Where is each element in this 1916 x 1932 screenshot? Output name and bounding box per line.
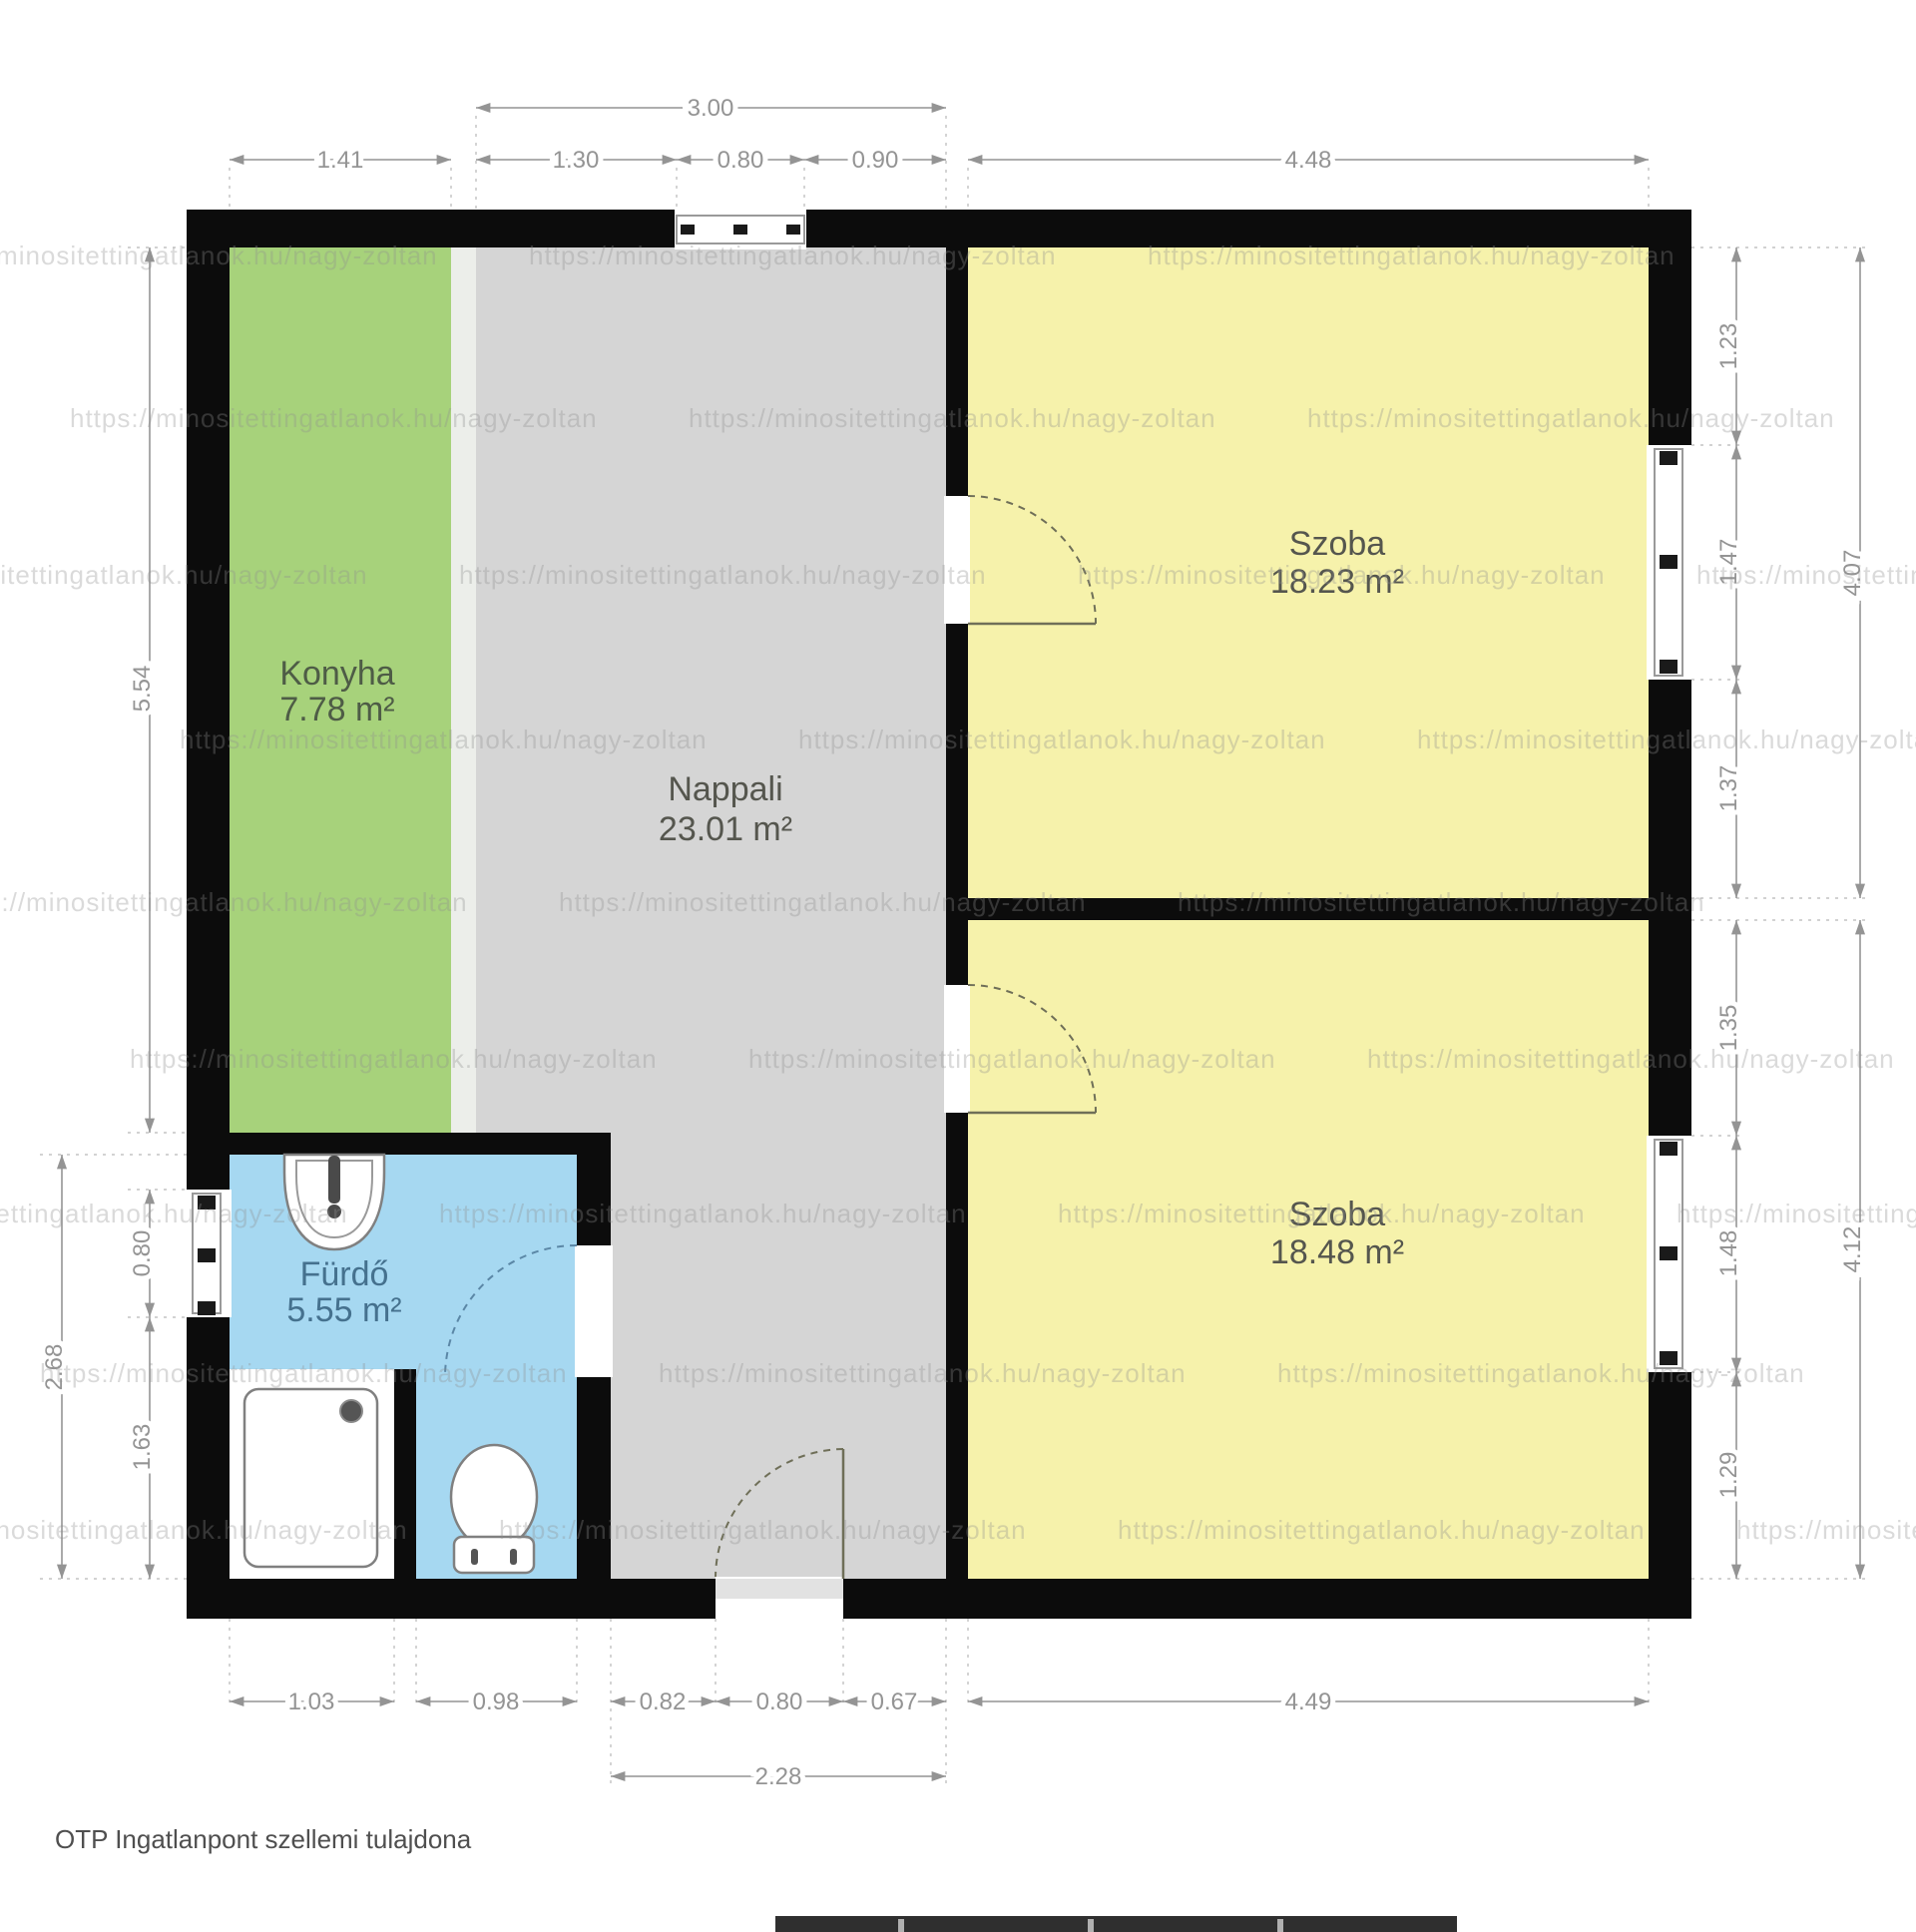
watermark-text: https://minositettingatlanok.hu/nagy-zol… bbox=[1277, 1358, 1805, 1388]
watermark-text: https://minositettingatlanok.hu/nagy-zol… bbox=[559, 887, 1087, 917]
bathroom-area: 5.55 m² bbox=[286, 1291, 401, 1329]
bedroom1-label: Szoba bbox=[1289, 525, 1385, 563]
watermark-text: https://minositettingatlanok.hu/nagy-zol… bbox=[40, 1358, 568, 1388]
watermark-text: https://minositettingatlanok.hu/nagy-zol… bbox=[70, 403, 598, 433]
watermark-text: https://minositettingatlanok.hu/nagy-zol… bbox=[499, 1515, 1027, 1545]
wall-shower-stub bbox=[394, 1369, 416, 1579]
bedroom2-window-tick bbox=[1660, 1142, 1677, 1156]
living-room-label: Nappali bbox=[668, 770, 782, 808]
watermark-text: https://minositettingatlanok.hu/nagy-zol… bbox=[1078, 560, 1606, 590]
bedroom1-window-tick bbox=[1660, 660, 1677, 674]
floor-plan-drawing: Konyha 7.78 m² Nappali 23.01 m² Szoba 18… bbox=[0, 0, 1916, 1932]
watermark-text: https://minositettingatlanok.hu/nagy-zol… bbox=[1367, 1044, 1895, 1074]
living-room-area: 23.01 m² bbox=[659, 810, 792, 848]
dim-right-upper-1: 1.23 bbox=[1715, 323, 1742, 370]
dim-right-lower-3: 1.29 bbox=[1715, 1452, 1742, 1499]
dim-top-1: 1.41 bbox=[317, 147, 364, 174]
dim-right-upper-3: 1.37 bbox=[1715, 765, 1742, 812]
watermark-text: https://minositettingatlanok.hu/nagy-zol… bbox=[459, 560, 987, 590]
watermark-text: https://minositettingatlanok.hu/nagy-zol… bbox=[1058, 1199, 1586, 1228]
sink-faucet-icon bbox=[328, 1156, 340, 1204]
watermark-text: https://minositettingatlanok.hu/nagy-zol… bbox=[0, 1515, 408, 1545]
footer-copyright: OTP Ingatlanpont szellemi tulajdona bbox=[55, 1824, 472, 1854]
watermark-text: https://minositettingatlanok.hu/nagy-zol… bbox=[0, 887, 468, 917]
dim-top-2: 1.30 bbox=[553, 147, 600, 174]
dim-bottom-overall: 2.28 bbox=[755, 1763, 802, 1790]
dim-bottom-room: 4.49 bbox=[1285, 1689, 1332, 1715]
floor-plan-page: Konyha 7.78 m² Nappali 23.01 m² Szoba 18… bbox=[0, 0, 1916, 1932]
watermark-text: https://minositettingatlanok.hu/nagy-zol… bbox=[0, 560, 368, 590]
watermark-text: https://minositettingatlanok.hu/nagy-zol… bbox=[130, 1044, 658, 1074]
kitchen-area: 7.78 m² bbox=[279, 691, 394, 728]
watermark-text: https://minositettingatlanok.hu/nagy-zol… bbox=[439, 1199, 967, 1228]
watermark-text: https://minositettingatlanok.hu/nagy-zol… bbox=[0, 241, 438, 270]
dim-bottom-4: 0.80 bbox=[756, 1689, 803, 1715]
watermark-text: https://minositettingatlanok.hu/nagy-zol… bbox=[1696, 560, 1916, 590]
dim-bottom-1: 1.03 bbox=[288, 1689, 335, 1715]
watermark-text: https://minositettingatlanok.hu/nagy-zol… bbox=[1676, 1199, 1916, 1228]
watermark-text: https://minositettingatlanok.hu/nagy-zol… bbox=[1736, 1515, 1916, 1545]
toilet-hinge-right bbox=[510, 1549, 517, 1565]
dim-bottom-2: 0.98 bbox=[473, 1689, 520, 1715]
bathroom-door-opening bbox=[575, 1245, 613, 1377]
kitchen-living-divider bbox=[451, 247, 476, 1133]
dim-left-kitchen: 5.54 bbox=[129, 666, 156, 713]
watermark-text: https://minositettingatlanok.hu/nagy-zol… bbox=[529, 241, 1057, 270]
balcony-window-tick bbox=[786, 225, 800, 235]
watermark-text: https://minositettingatlanok.hu/nagy-zol… bbox=[1307, 403, 1835, 433]
shower-drain-icon bbox=[340, 1400, 362, 1422]
watermark-text: https://minositettingatlanok.hu/nagy-zol… bbox=[1178, 887, 1705, 917]
bedroom2-area: 18.48 m² bbox=[1270, 1233, 1404, 1271]
entry-door-threshold bbox=[716, 1579, 843, 1599]
watermark-text: https://minositettingatlanok.hu/nagy-zol… bbox=[659, 1358, 1187, 1388]
dim-bottom-5: 0.67 bbox=[871, 1689, 918, 1715]
dim-right-lower-2: 1.48 bbox=[1715, 1230, 1742, 1277]
bedroom2-window-tick bbox=[1660, 1246, 1677, 1260]
balcony-window-tick bbox=[733, 225, 747, 235]
watermark-text: https://minositettingatlanok.hu/nagy-zol… bbox=[798, 724, 1326, 754]
dim-top-overall: 3.00 bbox=[688, 95, 734, 122]
dim-right-lower-overall: 4.12 bbox=[1839, 1226, 1866, 1273]
bedroom1-window-tick bbox=[1660, 555, 1677, 569]
toilet-hinge-left bbox=[471, 1549, 478, 1565]
dim-top-room: 4.48 bbox=[1285, 147, 1332, 174]
watermark-text: https://minositettingatlanok.hu/nagy-zol… bbox=[689, 403, 1216, 433]
wall-bottom bbox=[187, 1579, 1691, 1619]
dim-top-4: 0.90 bbox=[852, 147, 899, 174]
watermark-text: https://minositettingatlanok.hu/nagy-zol… bbox=[1417, 724, 1916, 754]
watermark-text: https://minositettingatlanok.hu/nagy-zol… bbox=[748, 1044, 1276, 1074]
scale-bar bbox=[775, 1916, 1457, 1932]
dim-left-window: 0.80 bbox=[129, 1230, 156, 1277]
bathroom-label: Fürdő bbox=[300, 1255, 389, 1293]
watermark-text: https://minositettingatlanok.hu/nagy-zol… bbox=[1118, 1515, 1646, 1545]
kitchen-label: Konyha bbox=[279, 655, 394, 693]
bathroom-window-tick bbox=[198, 1301, 216, 1315]
bathroom-window-tick bbox=[198, 1248, 216, 1262]
bedroom1-window-tick bbox=[1660, 451, 1677, 465]
balcony-window-tick bbox=[681, 225, 695, 235]
dim-top-3: 0.80 bbox=[718, 147, 764, 174]
wall-bath-top bbox=[187, 1133, 611, 1155]
dim-left-lower: 1.63 bbox=[129, 1424, 156, 1471]
watermark-text: https://minositettingatlanok.hu/nagy-zol… bbox=[180, 724, 708, 754]
dim-bottom-3: 0.82 bbox=[640, 1689, 687, 1715]
watermark-text: https://minositettingatlanok.hu/nagy-zol… bbox=[0, 1199, 348, 1228]
watermark-text: https://minositettingatlanok.hu/nagy-zol… bbox=[1148, 241, 1676, 270]
